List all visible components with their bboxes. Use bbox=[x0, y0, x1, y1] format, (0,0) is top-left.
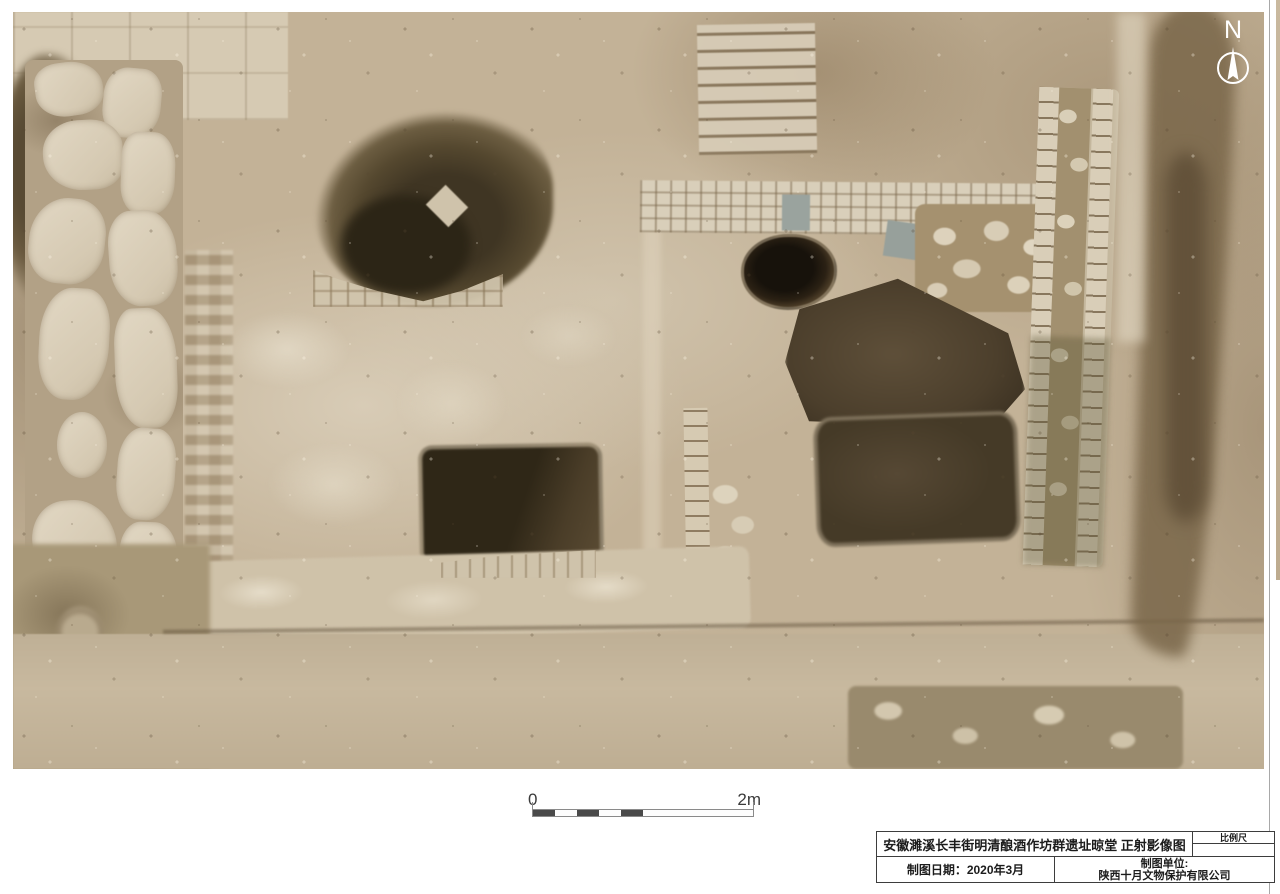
photo-edge-sliver bbox=[1276, 0, 1280, 580]
map-title: 安徽濉溪长丰街明清酿酒作坊群遗址晾堂 正射影像图 bbox=[877, 832, 1193, 856]
excavation-pit-center bbox=[418, 442, 604, 565]
title-block: 安徽濉溪长丰街明清酿酒作坊群遗址晾堂 正射影像图 比例尺 制图日期：2020年3… bbox=[876, 831, 1275, 883]
stone-slab bbox=[114, 426, 178, 522]
stone-slab bbox=[41, 118, 125, 192]
drawing-date: 制图日期：2020年3月 bbox=[877, 857, 1055, 882]
title-block-row2: 制图日期：2020年3月 制图单位: 陕西十月文物保护有限公司 bbox=[877, 857, 1274, 882]
title-block-row1: 安徽濉溪长丰街明清酿酒作坊群遗址晾堂 正射影像图 比例尺 bbox=[877, 832, 1274, 857]
scale-cell: 比例尺 bbox=[1193, 832, 1274, 856]
drawing-org-line1: 制图单位: bbox=[1141, 858, 1189, 870]
stone-slab bbox=[113, 307, 179, 429]
orthophoto bbox=[13, 12, 1264, 769]
scale-cell-label: 比例尺 bbox=[1193, 832, 1274, 844]
wall-dark-fill bbox=[1023, 335, 1111, 567]
bluestone-slab bbox=[782, 194, 810, 230]
north-arrow: N bbox=[1203, 16, 1263, 94]
scale-cell-value bbox=[1193, 844, 1274, 856]
compass-icon bbox=[1203, 16, 1263, 94]
drawing-org-line2: 陕西十月文物保护有限公司 bbox=[1099, 870, 1231, 882]
lower-ground-band bbox=[13, 634, 1264, 769]
round-pit bbox=[741, 234, 837, 310]
stone-slab bbox=[32, 58, 107, 121]
drawing-org: 制图单位: 陕西十月文物保护有限公司 bbox=[1055, 857, 1274, 882]
scale-bar-rule bbox=[532, 809, 754, 817]
stone-slab bbox=[106, 208, 181, 309]
frame-right-rule bbox=[1269, 0, 1270, 894]
floor-boundary bbox=[643, 222, 661, 562]
stone-rubble bbox=[848, 686, 1183, 769]
erosion-gully-core bbox=[1165, 152, 1207, 522]
stone-slab bbox=[120, 131, 177, 215]
stone-slab bbox=[25, 194, 110, 287]
stone-slab bbox=[36, 286, 112, 402]
scale-bar: 0 2m bbox=[527, 790, 767, 820]
stair-feature bbox=[697, 23, 817, 155]
pale-streak bbox=[1117, 12, 1145, 342]
brick-wall-vertical bbox=[1023, 87, 1120, 568]
excavation-pit-right-lower bbox=[813, 410, 1021, 547]
millstone-disc bbox=[57, 412, 107, 478]
scale-end-label: 2m bbox=[737, 790, 761, 810]
